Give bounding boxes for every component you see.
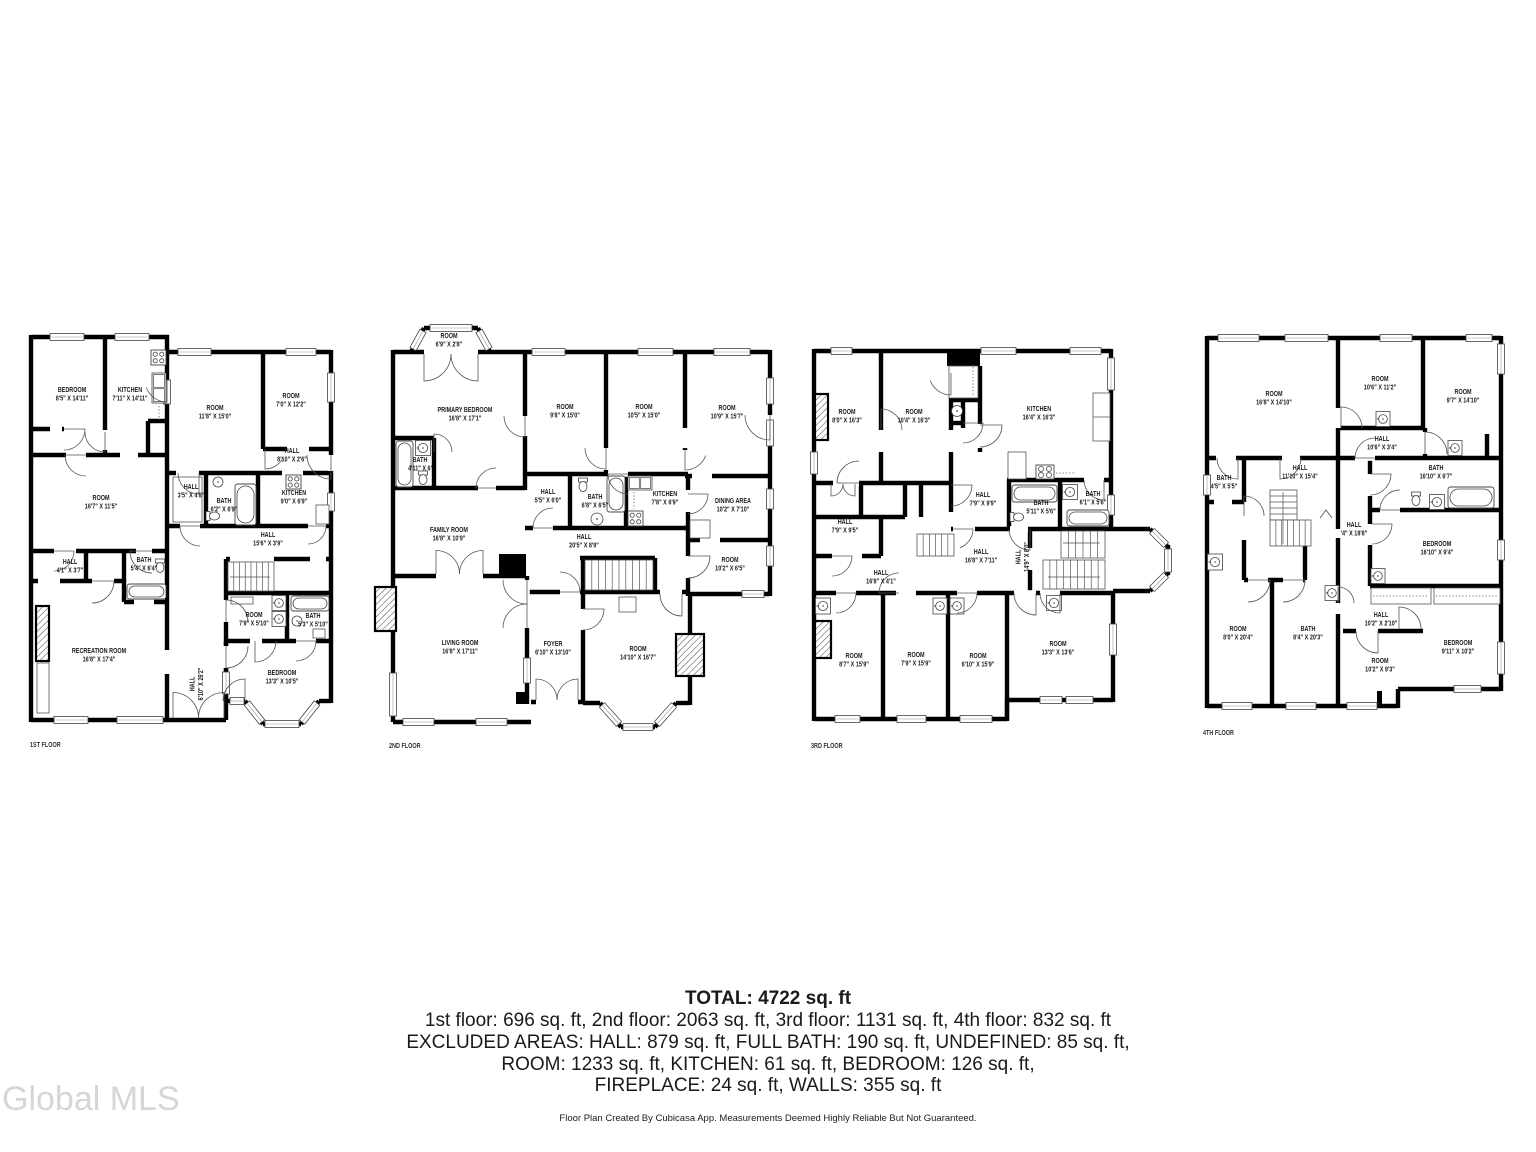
svg-text:ROOM: ROOM — [629, 645, 646, 653]
svg-text:ROOM: ROOM — [1371, 375, 1388, 383]
svg-text:ROOM: ROOM — [556, 403, 573, 411]
svg-text:10'2" X 2'10": 10'2" X 2'10" — [1365, 620, 1398, 628]
svg-text:HALL: HALL — [1293, 464, 1308, 472]
svg-text:ROOM: ROOM — [969, 652, 986, 660]
svg-text:8'7" X 15'9": 8'7" X 15'9" — [839, 661, 869, 669]
svg-text:3RD FLOOR: 3RD FLOOR — [811, 742, 843, 750]
svg-text:EXCLUDED AREAS: HALL: 879 sq.: EXCLUDED AREAS: HALL: 879 sq. ft, FULL B… — [406, 1032, 1129, 1053]
svg-text:7'9" X 9'9": 7'9" X 9'9" — [970, 500, 997, 508]
svg-text:5'11" X 5'6": 5'11" X 5'6" — [1026, 508, 1055, 516]
svg-text:5'3" X 5'10": 5'3" X 5'10" — [298, 621, 328, 629]
svg-text:16'7" X 11'5": 16'7" X 11'5" — [85, 503, 117, 511]
svg-text:10'9" X 15'7": 10'9" X 15'7" — [711, 413, 744, 421]
svg-text:16'8" X 4'1": 16'8" X 4'1" — [866, 578, 896, 586]
svg-text:ROOM: ROOM — [1454, 388, 1471, 396]
svg-text:1ST FLOOR: 1ST FLOOR — [30, 741, 61, 749]
svg-text:ROOM: ROOM — [245, 611, 262, 619]
svg-text:ROOM: ROOM — [1049, 640, 1066, 648]
svg-text:KITCHEN: KITCHEN — [1027, 405, 1052, 413]
svg-text:FOYER: FOYER — [544, 640, 563, 648]
svg-text:6'9" X 2'8": 6'9" X 2'8" — [436, 341, 463, 349]
svg-text:14'9" X 8'0": 14'9" X 8'0" — [1023, 542, 1031, 572]
svg-text:ROOM: ROOM — [92, 494, 109, 502]
svg-text:7'9" X 15'9": 7'9" X 15'9" — [901, 660, 931, 668]
svg-text:9'0" X 6'9": 9'0" X 6'9" — [281, 498, 308, 506]
svg-text:4'1" X 3'7": 4'1" X 3'7" — [57, 567, 84, 575]
svg-text:10'4" X 16'3": 10'4" X 16'3" — [898, 417, 931, 425]
svg-text:9'7" X 14'10": 9'7" X 14'10" — [1447, 397, 1480, 405]
svg-text:10'6" X 11'2": 10'6" X 11'2" — [1364, 384, 1396, 392]
svg-text:DINING AREA: DINING AREA — [715, 497, 751, 505]
svg-text:BATH: BATH — [1086, 490, 1101, 498]
svg-text:16'10" X 6'7": 16'10" X 6'7" — [1420, 473, 1453, 481]
svg-text:10'6" X 3'4": 10'6" X 3'4" — [1367, 444, 1397, 452]
svg-text:ROOM: ROOM — [838, 408, 855, 416]
svg-text:BATH: BATH — [1301, 625, 1316, 633]
svg-text:BEDROOM: BEDROOM — [1444, 639, 1473, 647]
svg-text:16'8" X 10'9": 16'8" X 10'9" — [433, 535, 466, 543]
svg-text:HALL: HALL — [976, 491, 991, 499]
svg-text:8'4" X 20'3": 8'4" X 20'3" — [1293, 634, 1323, 642]
svg-text:5'5" X 6'0": 5'5" X 6'0" — [535, 497, 562, 505]
svg-text:6'1" X 5'6": 6'1" X 5'6" — [1080, 499, 1107, 507]
svg-text:16'8" X 17'11": 16'8" X 17'11" — [442, 648, 477, 656]
svg-text:20'5" X 8'9": 20'5" X 8'9" — [569, 542, 599, 550]
svg-text:7'11" X 14'11": 7'11" X 14'11" — [112, 395, 147, 403]
svg-text:RECREATION ROOM: RECREATION ROOM — [72, 647, 126, 655]
svg-text:ROOM: ROOM — [721, 556, 738, 564]
svg-text:11'10" X 15'4": 11'10" X 15'4" — [1282, 473, 1317, 481]
svg-text:KITCHEN: KITCHEN — [653, 490, 678, 498]
svg-text:9'11" X 10'2": 9'11" X 10'2" — [1442, 648, 1474, 656]
svg-text:HALL: HALL — [1015, 550, 1023, 565]
svg-text:TOTAL: 4722 sq. ft: TOTAL: 4722 sq. ft — [685, 988, 852, 1009]
svg-text:3'5" X 4'8": 3'5" X 4'8" — [178, 492, 205, 500]
svg-text:HALL: HALL — [261, 531, 276, 539]
svg-text:6'10" X 13'10": 6'10" X 13'10" — [535, 649, 571, 657]
svg-text:4'11" X 6': 4'11" X 6' — [408, 465, 432, 473]
svg-text:8'10" X 2'6": 8'10" X 2'6" — [277, 456, 307, 464]
svg-text:HALL: HALL — [63, 558, 78, 566]
svg-text:BATH: BATH — [588, 493, 603, 501]
svg-text:BEDROOM: BEDROOM — [1423, 540, 1452, 548]
svg-text:4'5" X 5'5": 4'5" X 5'5" — [1211, 483, 1238, 491]
svg-text:HALL: HALL — [874, 569, 889, 577]
svg-text:ROOM: ROOM — [905, 408, 922, 416]
svg-text:5'4" X 6'4": 5'4" X 6'4" — [131, 565, 158, 573]
svg-text:Global MLS: Global MLS — [2, 1080, 180, 1118]
svg-text:9'8" X 15'0": 9'8" X 15'0" — [550, 412, 580, 420]
svg-text:BATH: BATH — [306, 612, 321, 620]
svg-text:BATH: BATH — [1217, 474, 1232, 482]
svg-text:16'4" X 16'3": 16'4" X 16'3" — [1023, 414, 1056, 422]
svg-text:13'3" X 13'6": 13'3" X 13'6" — [1042, 649, 1075, 657]
svg-text:HALL: HALL — [541, 488, 556, 496]
svg-text:16'8" X 17'4": 16'8" X 17'4" — [83, 656, 116, 664]
svg-text:ROOM: 1233 sq. ft, KITCHEN: 61: ROOM: 1233 sq. ft, KITCHEN: 61 sq. ft, B… — [501, 1054, 1034, 1075]
svg-text:ROOM: ROOM — [845, 652, 862, 660]
svg-text:7'8" X 6'9": 7'8" X 6'9" — [652, 499, 679, 507]
svg-text:6'10" X 15'9": 6'10" X 15'9" — [962, 661, 995, 669]
svg-text:ROOM: ROOM — [718, 404, 735, 412]
svg-text:8'0" X 16'3": 8'0" X 16'3" — [832, 417, 862, 425]
svg-text:11'8" X 15'0": 11'8" X 15'0" — [199, 413, 231, 421]
svg-text:FIREPLACE: 24 sq. ft, WALLS: 3: FIREPLACE: 24 sq. ft, WALLS: 355 sq. ft — [595, 1075, 942, 1096]
svg-text:PRIMARY BEDROOM: PRIMARY BEDROOM — [438, 406, 493, 414]
svg-text:ROOM: ROOM — [1371, 657, 1388, 665]
svg-text:15'6" X 3'9": 15'6" X 3'9" — [253, 540, 283, 548]
svg-text:HALL: HALL — [1374, 611, 1389, 619]
svg-text:4TH FLOOR: 4TH FLOOR — [1203, 729, 1234, 737]
svg-text:10'2" X 9'3": 10'2" X 9'3" — [1365, 666, 1395, 674]
svg-text:HALL: HALL — [974, 548, 989, 556]
svg-text:BEDROOM: BEDROOM — [58, 386, 87, 394]
svg-text:10'2" X 7'10": 10'2" X 7'10" — [717, 506, 750, 514]
svg-text:7'9" X 5'10": 7'9" X 5'10" — [239, 620, 269, 628]
svg-text:ROOM: ROOM — [907, 651, 924, 659]
svg-text:BATH: BATH — [1034, 499, 1049, 507]
svg-text:1st floor: 696 sq. ft, 2nd flo: 1st floor: 696 sq. ft, 2nd floor: 2063 s… — [425, 1010, 1112, 1031]
svg-text:KITCHEN: KITCHEN — [282, 489, 307, 497]
svg-text:BATH: BATH — [413, 456, 428, 464]
svg-text:7'0" X 12'2": 7'0" X 12'2" — [276, 401, 306, 409]
svg-text:ROOM: ROOM — [282, 392, 299, 400]
svg-text:HALL: HALL — [1375, 435, 1390, 443]
svg-text:'4" X 18'8": '4" X 18'8" — [1341, 530, 1368, 538]
svg-text:6'8" X 6'5": 6'8" X 6'5" — [582, 502, 609, 510]
svg-text:14'10" X 16'7": 14'10" X 16'7" — [620, 654, 656, 662]
svg-text:KITCHEN: KITCHEN — [118, 386, 143, 394]
svg-text:HALL: HALL — [184, 483, 199, 491]
svg-text:BATH: BATH — [1429, 464, 1444, 472]
svg-text:LIVING ROOM: LIVING ROOM — [442, 639, 479, 647]
svg-text:16'8" X 7'11": 16'8" X 7'11" — [965, 557, 997, 565]
svg-text:6'10" X 26'2": 6'10" X 26'2" — [197, 668, 205, 701]
svg-text:BATH: BATH — [217, 497, 232, 505]
svg-text:16'10" X 9'4": 16'10" X 9'4" — [1421, 549, 1454, 557]
svg-text:BATH: BATH — [137, 556, 152, 564]
svg-text:10'2" X 6'5": 10'2" X 6'5" — [715, 565, 745, 573]
svg-text:HALL: HALL — [285, 447, 300, 455]
svg-text:ROOM: ROOM — [206, 404, 223, 412]
svg-text:13'3" X 10'5": 13'3" X 10'5" — [266, 678, 299, 686]
svg-text:ROOM: ROOM — [1265, 390, 1282, 398]
svg-text:ROOM: ROOM — [1229, 625, 1246, 633]
svg-text:2ND FLOOR: 2ND FLOOR — [389, 742, 421, 750]
svg-text:HALL: HALL — [1347, 521, 1362, 529]
svg-text:8'0" X 20'4": 8'0" X 20'4" — [1223, 634, 1253, 642]
svg-text:6'2" X 6'9": 6'2" X 6'9" — [211, 506, 238, 514]
svg-text:16'8" X 14'10": 16'8" X 14'10" — [1256, 399, 1292, 407]
svg-text:HALL: HALL — [189, 677, 197, 692]
svg-text:Floor Plan Created By Cubicasa: Floor Plan Created By Cubicasa App. Meas… — [559, 1113, 976, 1124]
svg-text:HALL: HALL — [838, 518, 853, 526]
svg-text:7'9" X 9'5": 7'9" X 9'5" — [832, 527, 859, 535]
svg-text:16'8" X 17'1": 16'8" X 17'1" — [449, 415, 482, 423]
svg-text:FAMILY ROOM: FAMILY ROOM — [430, 526, 468, 534]
svg-text:ROOM: ROOM — [635, 403, 652, 411]
svg-text:HALL: HALL — [577, 533, 592, 541]
svg-text:8'5" X 14'11": 8'5" X 14'11" — [56, 395, 88, 403]
svg-text:10'5" X 15'0": 10'5" X 15'0" — [628, 412, 661, 420]
svg-text:BEDROOM: BEDROOM — [268, 669, 297, 677]
svg-text:ROOM: ROOM — [440, 332, 457, 340]
